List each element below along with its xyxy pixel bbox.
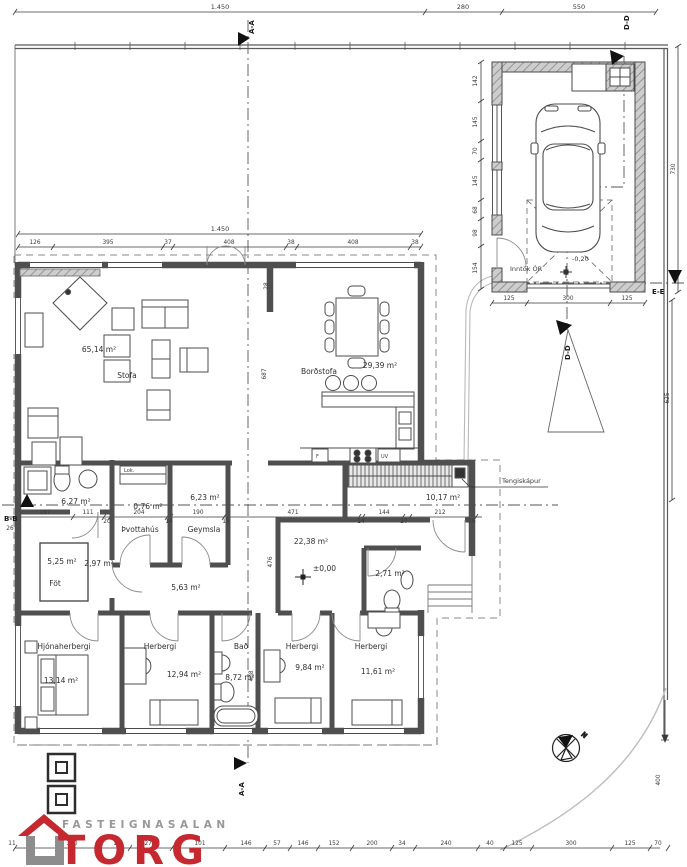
dim-bot-15: 125: [624, 841, 635, 847]
floor-plan-sheet: A-A A-A B-B D-D D-D E-E N 65,14 m² Stofa…: [0, 0, 687, 867]
dim-bot-0: 11: [8, 841, 16, 847]
garage: [492, 62, 645, 292]
dim-bot-16: 70: [654, 841, 662, 847]
dim-v408: 408: [249, 670, 255, 681]
hjona-area: 13,14 m²: [44, 676, 78, 685]
g297-area: 2,97 m²: [84, 559, 113, 568]
terrain-curve: [500, 688, 666, 850]
section-ee-label: E-E: [652, 288, 665, 296]
dim-bot-8: 152: [328, 841, 339, 847]
dim-right-625: 625: [665, 392, 671, 403]
fot-name: Föt: [49, 579, 61, 588]
tengiskapur-label: Tengiskápur: [501, 477, 541, 485]
geymsla-name: Geymsla: [188, 525, 221, 534]
dim-housetop-6: 38: [411, 240, 419, 246]
herb3-name: Herbergi: [355, 642, 388, 651]
bath1-fixtures: [24, 466, 97, 494]
dim-bot-10: 34: [398, 841, 406, 847]
fot-area: 5,25 m²: [47, 557, 76, 566]
dim-v476: 476: [268, 556, 274, 567]
section-view-cone: [548, 330, 604, 432]
thvotta-name: Þvottahús: [121, 525, 159, 534]
dim-right-730: 730: [671, 163, 677, 174]
dim-housetop-4: 38: [287, 240, 295, 246]
dim-housetop-total: 1.450: [211, 225, 230, 233]
garage-interior-unit: [572, 64, 634, 91]
dim-garleft-6: 154: [473, 262, 479, 273]
dim-housetop-1: 395: [102, 240, 113, 246]
dim-mid-10: 27: [400, 519, 408, 525]
dim-mid-5: 190: [192, 510, 203, 516]
inntak-label: Inntök ÓR: [510, 264, 543, 273]
dim-housetop-3: 408: [223, 240, 234, 246]
section-dd-lower-label: D-D: [564, 345, 572, 360]
lot-rear-dashed-line: [18, 737, 437, 745]
g623-area: 6,23 m²: [190, 493, 219, 502]
hjona-name: Hjónaherbergi: [37, 642, 90, 651]
garage-level-label: -0,20: [572, 255, 589, 263]
garage-door-arc: [497, 238, 526, 267]
herb3-area: 11,61 m²: [361, 667, 395, 676]
dim-garbot-1: 300: [562, 296, 573, 302]
dim-mid-left: 26: [6, 526, 14, 532]
floor-plan-drawing: A-A A-A B-B D-D D-D E-E N 65,14 m² Stofa…: [0, 0, 687, 867]
dim-garleft-3: 145: [473, 175, 479, 186]
dim-top-280: 280: [457, 3, 469, 11]
hall-area: 22,38 m²: [294, 537, 328, 546]
dim-mid-3: 204: [133, 510, 144, 516]
section-aa-bottom-label: A-A: [238, 782, 246, 796]
dim-garleft-4: 68: [473, 206, 479, 214]
dim-mid-7: 471: [287, 510, 298, 516]
dim-bot-5: 146: [240, 841, 251, 847]
dim-mid-0: 197: [39, 510, 50, 516]
sill-hatch: [20, 269, 100, 276]
dim-top-total: 1.450: [211, 3, 230, 11]
compass-icon: N: [553, 731, 589, 762]
compass-north-label: N: [580, 731, 589, 740]
gang-area: 5,63 m²: [171, 583, 200, 592]
stofa-name: Stofa: [117, 371, 137, 380]
dim-housetop-2: 37: [164, 240, 172, 246]
herb2-area: 9,84 m²: [295, 663, 324, 672]
dim-garbot-0: 125: [503, 296, 514, 302]
dim-v28: 28: [264, 282, 270, 290]
dim-bot-9: 200: [366, 841, 377, 847]
dim-bot-7: 146: [297, 841, 308, 847]
dim-mid-11: 212: [434, 510, 445, 516]
dim-mid-6: 15: [222, 519, 230, 525]
logo-text-main: TORG: [58, 828, 211, 867]
dim-bot-13: 125: [511, 841, 522, 847]
entry-steps: [428, 556, 472, 613]
wc-area: 2,71 m²: [375, 569, 404, 578]
dim-garleft-1: 145: [473, 116, 479, 127]
dim-mid-4: 14: [165, 519, 173, 525]
fot-closet: [40, 543, 88, 601]
dim-housetop-0: 126: [29, 240, 40, 246]
bad-name: Bað: [234, 642, 249, 651]
forstofa-area: 10,17 m²: [426, 493, 460, 502]
dim-mid-12: 26: [468, 519, 476, 525]
dim-garleft-2: 70: [473, 147, 479, 155]
dim-bot-6: 57: [273, 841, 281, 847]
dim-mid-8: 14: [357, 519, 365, 525]
section-bb-label: B-B: [4, 515, 18, 523]
dim-right-400: 400: [656, 774, 662, 785]
bord-area: 29,39 m²: [363, 361, 397, 370]
fireplace-icon: [53, 277, 107, 330]
stofa-area: 65,14 m²: [82, 345, 116, 354]
garage-level-marker: [560, 266, 572, 278]
herb1-area: 12,94 m²: [167, 670, 201, 679]
bath1-area: 6,27 m²: [61, 497, 90, 506]
section-aa-top-label: A-A: [248, 20, 256, 34]
agency-logo: FASTEIGNASALAN TORG: [18, 754, 230, 867]
herb1-name: Herbergi: [144, 642, 177, 651]
dim-garbot-2: 125: [621, 296, 632, 302]
hall-level-marker: [295, 569, 311, 585]
dim-housetop-5: 408: [347, 240, 358, 246]
kitchen-icons: [300, 376, 421, 464]
dim-mid-2: 20: [103, 519, 111, 525]
car-icon: [531, 104, 605, 252]
dim-v687: 687: [262, 368, 268, 379]
closet-tag: Lok.: [124, 468, 135, 474]
bad-fixtures: [214, 652, 258, 726]
bord-name: Borðstofa: [301, 367, 337, 376]
tengiskapur-box: [455, 468, 465, 478]
dim-bot-11: 240: [440, 841, 451, 847]
dim-mid-9: 144: [378, 510, 389, 516]
hjona-bed-icon: [25, 641, 88, 729]
dining-table-icon: [325, 286, 389, 368]
kitchen-uv-label: UV: [381, 454, 389, 460]
hall-level: ±0,00: [313, 564, 336, 573]
dim-garleft-0: 142: [473, 75, 479, 86]
herb2-name: Herbergi: [286, 642, 319, 651]
dim-bot-12: 40: [486, 841, 494, 847]
section-dd-top-label: D-D: [623, 15, 631, 30]
dim-bot-14: 300: [565, 841, 576, 847]
dim-top-550: 550: [573, 3, 585, 11]
dim-mid-1: 111: [82, 510, 93, 516]
kitchen-f-label: F: [316, 454, 319, 460]
dim-garleft-5: 98: [473, 229, 479, 237]
